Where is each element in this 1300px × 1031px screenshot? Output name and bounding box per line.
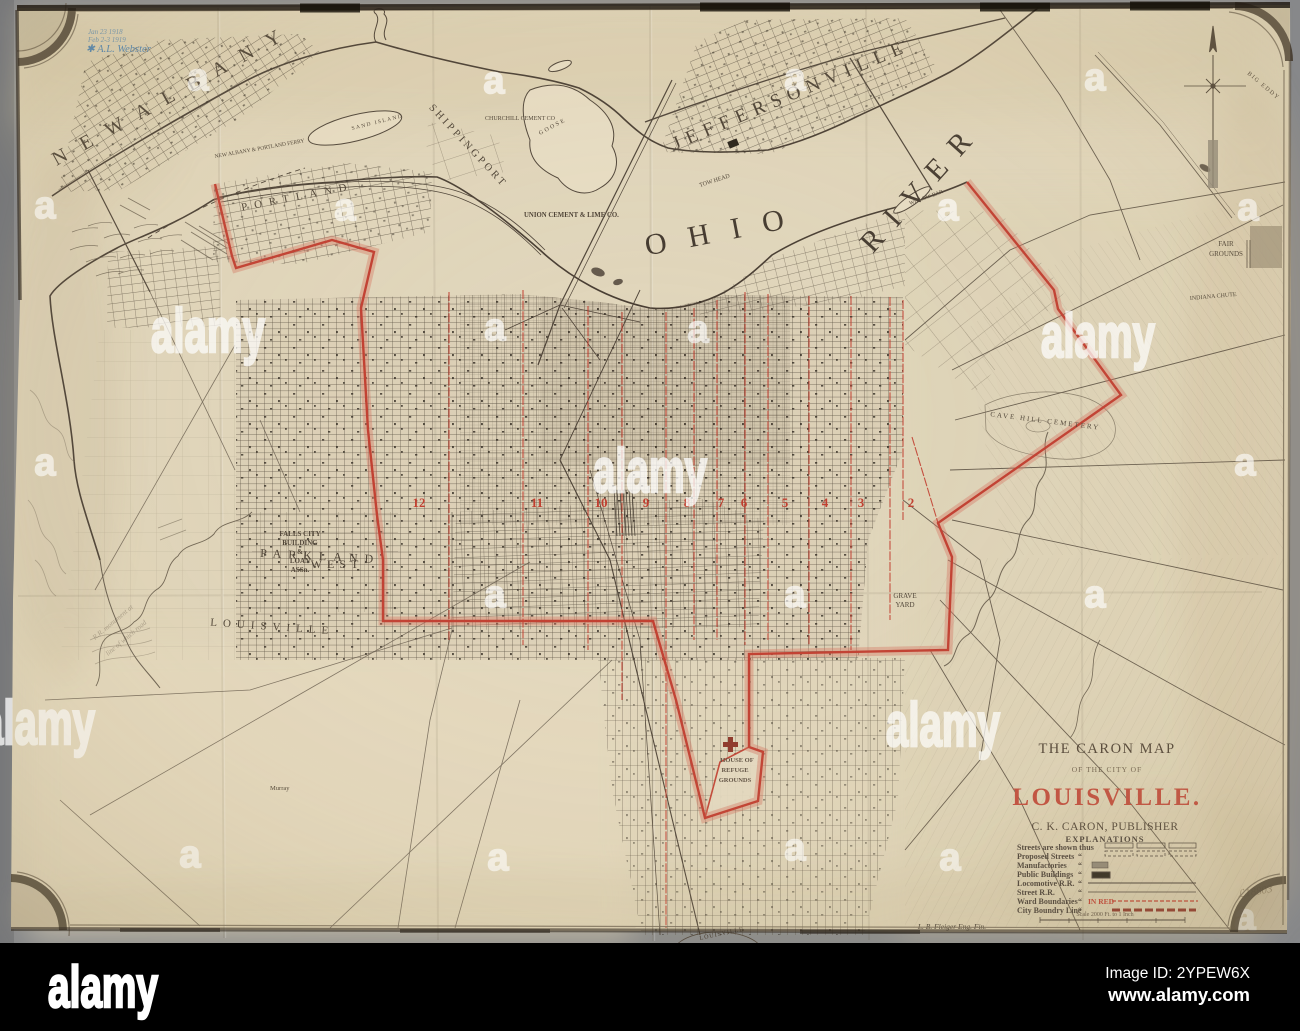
svg-text:www.alamy.com: www.alamy.com xyxy=(1107,984,1250,1005)
svg-text:alamy: alamy xyxy=(48,955,158,1020)
svg-text:Image ID: 2YPEW6X: Image ID: 2YPEW6X xyxy=(1105,965,1250,982)
